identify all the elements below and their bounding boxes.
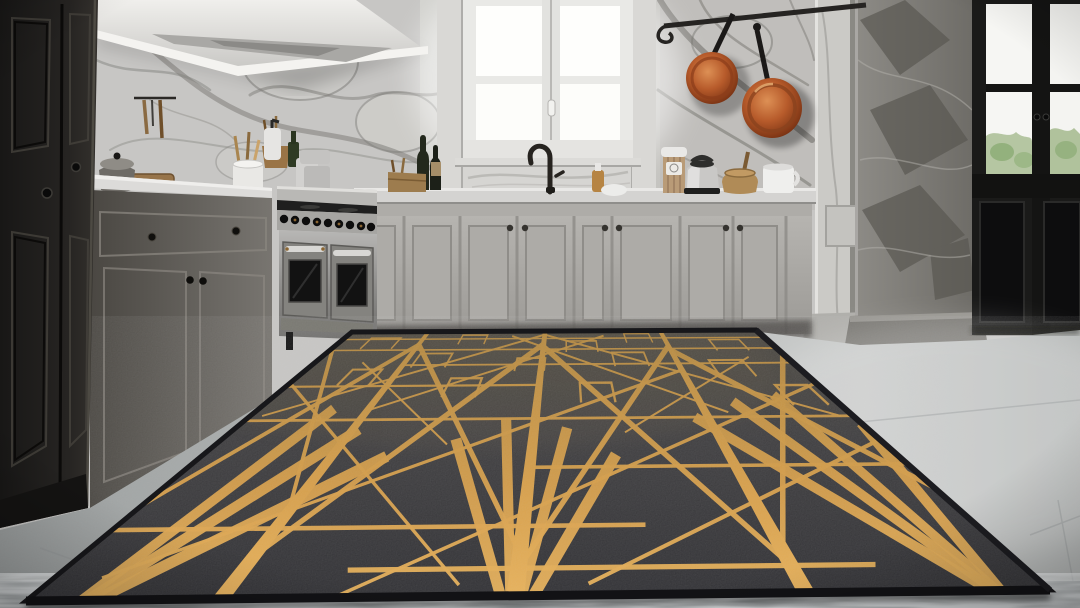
kitchen-photo bbox=[0, 0, 1080, 608]
vignette bbox=[0, 0, 1080, 608]
kitchen-scene bbox=[0, 0, 1080, 608]
